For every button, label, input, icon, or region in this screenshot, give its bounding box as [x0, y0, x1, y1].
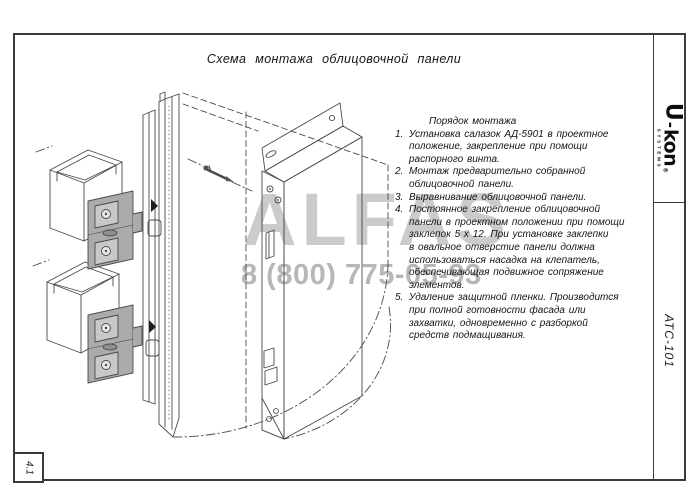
upper-slider-bracket — [88, 191, 142, 269]
sheet-number-box: 4.1 — [13, 452, 44, 483]
lower-slider-bracket — [88, 305, 142, 383]
instruction-step: 3. Выравнивание облицовочной панели. — [395, 192, 647, 205]
doc-number: АТС-101 — [662, 314, 676, 368]
ukon-logo-hyphen: - — [663, 121, 677, 129]
rivet-icon — [203, 165, 234, 182]
drawing-title: Схема монтажа облицовочной панели — [15, 52, 653, 66]
instructions-heading: Порядок монтажа — [429, 116, 647, 129]
instruction-step: 1. Установка салазок АД-5901 в проектное… — [395, 129, 647, 167]
installation-instructions: Порядок монтажа 1. Установка салазок АД-… — [395, 116, 647, 343]
mullion-rail — [143, 92, 179, 437]
drawing-sheet: Схема монтажа облицовочной панели ALFAS … — [0, 0, 700, 495]
title-block-divider — [654, 202, 684, 203]
instruction-step: 5. Удаление защитной пленки. Производитс… — [395, 292, 647, 342]
ukon-logo-kon: kon — [663, 129, 679, 166]
projection-lines — [183, 93, 388, 428]
instruction-step: 4. Постоянное закрепление облицовочной п… — [395, 204, 647, 292]
ukon-logo: U - kon ® SYSTEMS — [657, 94, 682, 182]
title-block-column: U - kon ® SYSTEMS АТС-101 — [653, 35, 684, 479]
ukon-logo-u: U — [663, 103, 682, 121]
drawing-frame: Схема монтажа облицовочной панели ALFAS … — [13, 33, 686, 481]
swing-arcs — [33, 146, 391, 439]
facing-panel — [262, 103, 362, 439]
registered-mark-icon: ® — [663, 167, 668, 173]
instruction-step: 2. Монтаж предварительно собранной облиц… — [395, 166, 647, 191]
sheet-number: 4.1 — [23, 461, 34, 475]
